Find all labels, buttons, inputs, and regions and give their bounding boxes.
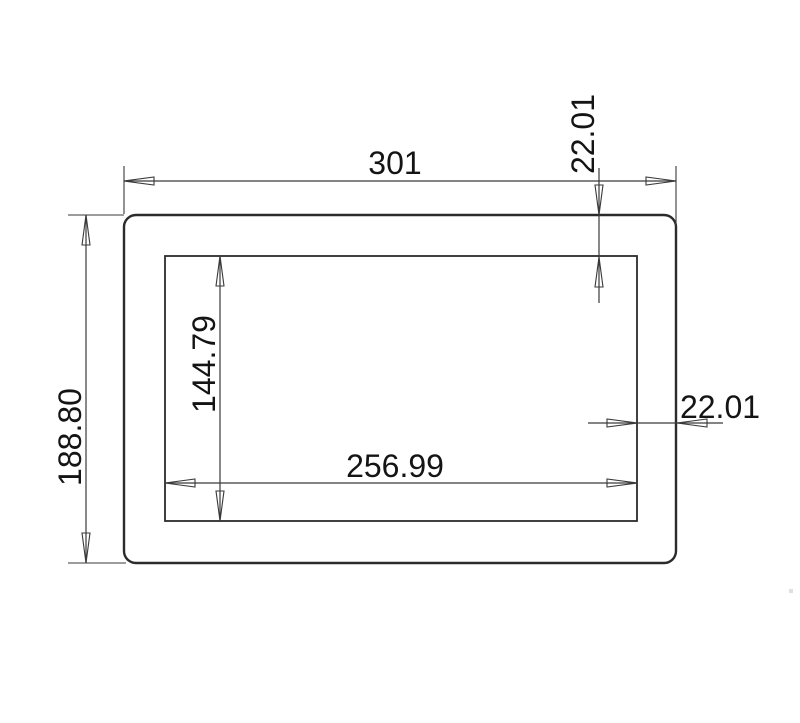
- dim-top-wall: 22.01: [565, 94, 603, 303]
- drawing-svg: 301 188.80 144.79 256.99: [0, 0, 800, 723]
- dim-side-wall: 22.01: [588, 389, 760, 427]
- technical-drawing-canvas: 301 188.80 144.79 256.99: [0, 0, 800, 723]
- dim-inner-height: 144.79: [186, 256, 224, 521]
- dim-inner-width: 256.99: [165, 448, 637, 487]
- artifact-dot: [789, 589, 793, 593]
- dim-label-outer-height: 188.80: [52, 388, 88, 486]
- dim-label-top-wall: 22.01: [565, 94, 601, 174]
- dim-outer-height: 188.80: [52, 215, 126, 563]
- dim-label-side-wall: 22.01: [680, 389, 760, 425]
- dim-label-outer-width: 301: [368, 145, 421, 181]
- dim-label-inner-height: 144.79: [186, 315, 222, 413]
- dim-label-inner-width: 256.99: [346, 448, 444, 484]
